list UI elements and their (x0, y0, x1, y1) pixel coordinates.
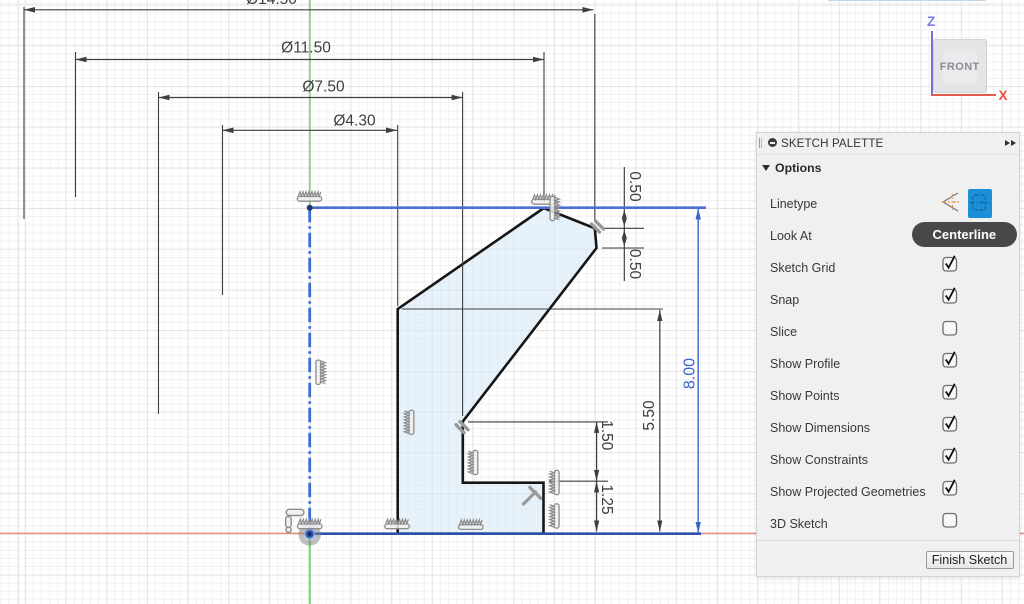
svg-text:8.00: 8.00 (682, 358, 699, 389)
svg-text:Ø14.50: Ø14.50 (246, 0, 297, 8)
svg-text:0.50: 0.50 (626, 171, 643, 202)
svg-text:0.50: 0.50 (626, 249, 643, 280)
svg-text:1.50: 1.50 (598, 420, 615, 451)
svg-text:Ø7.50: Ø7.50 (302, 79, 345, 96)
svg-text:Ø4.30: Ø4.30 (333, 112, 376, 129)
svg-text:5.50: 5.50 (641, 400, 658, 431)
svg-text:1.25: 1.25 (598, 484, 615, 514)
svg-text:Ø11.50: Ø11.50 (281, 40, 331, 57)
